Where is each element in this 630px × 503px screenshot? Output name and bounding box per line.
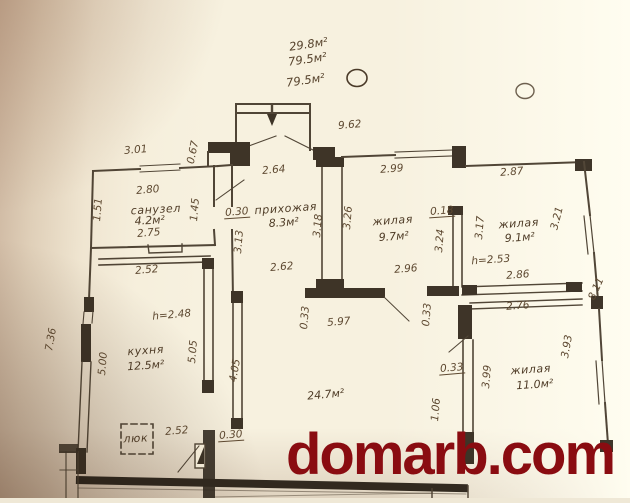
plan-labels: 29.8м²79.5м²79.5м²9.623.010.672.80санузе…	[43, 34, 606, 445]
room-area-label: 9.7м²	[378, 229, 410, 244]
dimension-label: 3.24	[433, 229, 447, 253]
dimension-label: 3.26	[341, 205, 355, 230]
hole-punch-mark	[516, 84, 534, 99]
watermark: domarb.com	[286, 426, 614, 484]
room-area-label: 12.5м²	[127, 358, 166, 374]
dimension-label: 2.52	[165, 424, 190, 438]
floor-plan-photo: 29.8м²79.5м²79.5м²9.623.010.672.80санузе…	[0, 0, 630, 498]
dimension-label: 2.99	[380, 162, 404, 176]
dimension-label: 3.17	[473, 215, 487, 240]
dimension-label: 2.76	[506, 299, 530, 313]
dimension-label: 3.13	[232, 230, 246, 254]
room-label: кухня	[127, 343, 164, 359]
dimension-label: 0.67	[185, 139, 202, 165]
dimension-label: 0.18	[430, 204, 454, 218]
dimension-label: 3.99	[480, 364, 494, 389]
dimension-label: 5.97	[327, 315, 351, 329]
dimension-label: 0.33	[298, 306, 312, 330]
dimension-label: 2.87	[500, 165, 524, 179]
dimension-label: 3.93	[559, 334, 575, 359]
dimension-label: 1.06	[429, 397, 443, 422]
dimension-label: 2.80	[136, 183, 161, 197]
dimension-label: 2.86	[506, 268, 530, 282]
dimension-label: 0.30	[219, 428, 243, 442]
dimension-label: 8.11	[586, 276, 606, 302]
dimension-label: 9.62	[338, 118, 363, 132]
dimension-label: 3.18	[311, 213, 325, 238]
dimension-label: 5.05	[186, 339, 200, 364]
dimension-label: 3.01	[124, 143, 148, 157]
room-area-label: 11.0м²	[516, 377, 555, 393]
dimension-label: 3.21	[548, 205, 565, 231]
dimension-label: h=2.53	[471, 253, 511, 268]
room-label: жилая	[371, 213, 413, 229]
dimension-label: 2.62	[270, 260, 295, 274]
dimension-label: 2.64	[262, 163, 286, 177]
dimension-label: 1.51	[91, 198, 105, 222]
hole-punch-mark	[347, 70, 367, 87]
dimension-label: 5.00	[96, 351, 110, 376]
room-area-label: 9.1м²	[504, 230, 536, 245]
entrance-arrow-icon	[267, 105, 277, 126]
dimension-label: 7.36	[43, 327, 59, 352]
dimension-label: 0.30	[225, 205, 249, 219]
room-area-label: 8.3м²	[268, 215, 300, 230]
room-label: люк	[122, 431, 148, 445]
dimension-label: 0.33	[420, 303, 434, 327]
room-label: прихожая	[254, 200, 317, 217]
dimension-label: 2.75	[137, 226, 162, 240]
dimension-label: 2.96	[394, 262, 418, 276]
room-area-label: 4.2м²	[134, 213, 165, 228]
dimension-label: h=2.48	[152, 307, 192, 322]
dimension-label: 1.45	[188, 197, 202, 222]
area-note-label: 79.5м²	[285, 70, 326, 89]
dimension-label: 2.52	[135, 263, 160, 277]
room-label: жилая	[509, 362, 551, 378]
room-area-label: 24.7м²	[307, 386, 346, 402]
dimension-label: 4.05	[227, 358, 243, 383]
